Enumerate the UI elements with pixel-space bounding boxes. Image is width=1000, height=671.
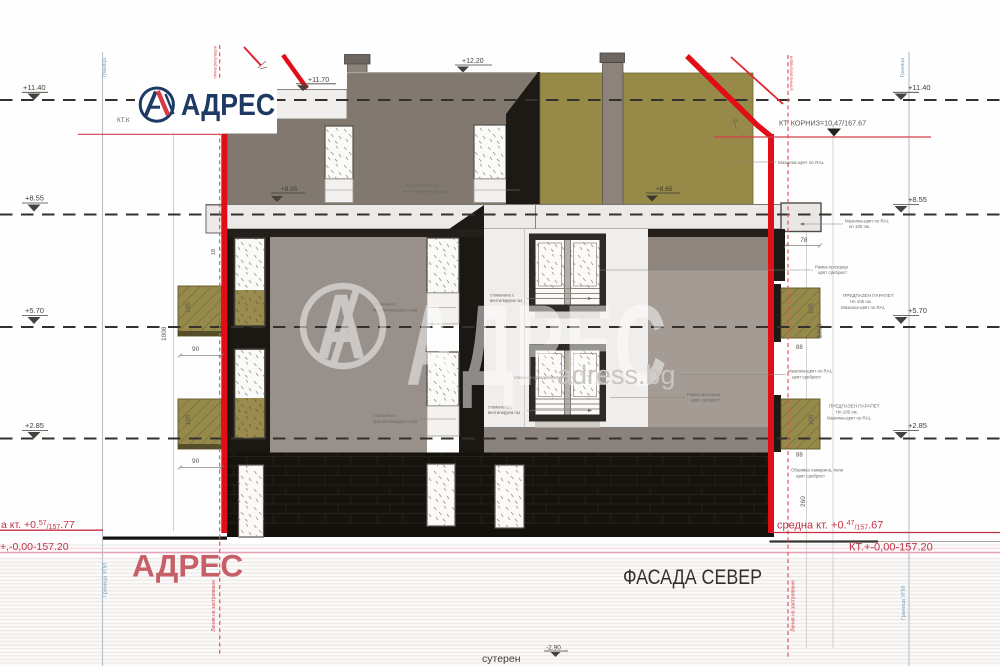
svg-text:90: 90 [192, 458, 200, 465]
svg-text:Мазилка-цвят по RAL: Мазилка-цвят по RAL [788, 369, 833, 374]
svg-text:АДРЕС: АДРЕС [181, 88, 275, 122]
svg-text:КТ.К: КТ.К [117, 117, 130, 124]
svg-text:цвят сребрист: цвят сребрист [796, 474, 825, 479]
svg-text:18: 18 [211, 249, 217, 255]
svg-text:+8.55: +8.55 [908, 195, 927, 204]
svg-text:улична регулация: улична регулация [213, 46, 218, 81]
svg-text:сутерен: сутерен [482, 653, 521, 665]
svg-text:вентилируема фасада: вентилируема фасада [403, 189, 449, 194]
svg-text:+8.65: +8.65 [281, 186, 298, 193]
svg-text:КТ.+-0,00-157.20: КТ.+-0,00-157.20 [849, 542, 933, 554]
svg-text:105: 105 [808, 303, 815, 314]
svg-text:+2.85: +2.85 [908, 421, 927, 430]
svg-text:105: 105 [185, 414, 192, 425]
svg-text:90: 90 [192, 346, 200, 353]
svg-text:Линия на застрояване: Линия на застрояване [791, 580, 797, 632]
svg-text:Нп 105 см.: Нп 105 см. [836, 410, 858, 415]
svg-text:цвят сребрист: цвят сребрист [792, 375, 821, 380]
svg-text:нп 100 см.: нп 100 см. [849, 224, 870, 229]
svg-text:ФАСАДА СЕВЕР: ФАСАДА СЕВЕР [623, 566, 762, 590]
svg-text:Линия на застрояване: Линия на застрояване [211, 580, 217, 632]
svg-text:+8.65: +8.65 [656, 186, 673, 193]
svg-text:АДРЕС: АДРЕС [406, 282, 668, 410]
svg-text:Рамка прозорци: Рамка прозорци [687, 392, 720, 397]
svg-text:противопожарна стена: противопожарна стена [373, 419, 418, 424]
svg-text:105: 105 [185, 302, 192, 313]
svg-text:цвят сребрист: цвят сребрист [818, 270, 847, 275]
svg-text:+11.40: +11.40 [23, 83, 46, 92]
svg-text:Граница УПИ: Граница УПИ [901, 586, 907, 620]
svg-text:вентилируем газ: вентилируем газ [488, 410, 520, 415]
svg-text:Обшивка ламарина, поли: Обшивка ламарина, поли [791, 468, 844, 473]
svg-text:Граница: Граница [102, 58, 108, 77]
svg-text:Мазилка-цвят по RAL: Мазилка-цвят по RAL [827, 416, 872, 421]
svg-text:adress.bg: adress.bg [557, 360, 676, 390]
svg-text:78: 78 [800, 237, 808, 244]
svg-text:Граница: Граница [900, 58, 906, 77]
svg-text:Мазилка-цвят по RAL: Мазилка-цвят по RAL [778, 160, 825, 165]
svg-text:АДРЕС: АДРЕС [132, 548, 243, 584]
svg-text:Граница УПИ: Граница УПИ [103, 563, 109, 597]
svg-text:А: А [316, 275, 366, 378]
svg-text:+5.70: +5.70 [25, 306, 44, 315]
svg-text:88: 88 [796, 453, 803, 459]
svg-text:а кт. +0.57/157.77: а кт. +0.57/157.77 [1, 519, 75, 531]
svg-text:+5.70: +5.70 [908, 306, 927, 315]
svg-text:+11.40: +11.40 [908, 83, 931, 92]
svg-text:Мазилка-цвят по RAL: Мазилка-цвят по RAL [845, 219, 890, 224]
svg-text:ПРЕДПАЗЕН ПАРАПЕТ: ПРЕДПАЗЕН ПАРАПЕТ [829, 404, 880, 409]
svg-text:стоманобетонна: стоманобетонна [406, 183, 439, 188]
svg-text:105: 105 [808, 414, 815, 425]
svg-text:+8.55: +8.55 [25, 194, 44, 203]
svg-text:КТ. КОРНИЗ=10,47/167.67: КТ. КОРНИЗ=10,47/167.67 [779, 119, 866, 128]
svg-text:Мазилка-цвят по RAL: Мазилка-цвят по RAL [841, 305, 886, 310]
svg-text:+,-0,00-157.20: +,-0,00-157.20 [0, 541, 69, 553]
svg-text:+11.70: +11.70 [308, 77, 329, 84]
svg-text:средна кт. +0.47/157.67: средна кт. +0.47/157.67 [777, 520, 883, 532]
svg-text:Нп 105 см.: Нп 105 см. [850, 299, 872, 304]
svg-text:+2.85: +2.85 [25, 421, 44, 430]
svg-text:+12.20: +12.20 [462, 58, 484, 65]
svg-text:-2.90: -2.90 [546, 645, 561, 652]
svg-text:стоманена с: стоманена с [373, 413, 397, 418]
svg-text:цвят сребрист: цвят сребрист [691, 398, 720, 403]
svg-text:ПРЕДПАЗЕН ПАРАПЕТ: ПРЕДПАЗЕН ПАРАПЕТ [843, 293, 894, 298]
svg-text:88: 88 [796, 345, 803, 351]
svg-text:улична регулация: улична регулация [789, 56, 794, 91]
svg-text:260: 260 [800, 496, 807, 507]
svg-text:Рамка прозорци: Рамка прозорци [815, 265, 848, 270]
svg-text:1000: 1000 [817, 323, 824, 338]
svg-text:1008: 1008 [161, 326, 168, 341]
